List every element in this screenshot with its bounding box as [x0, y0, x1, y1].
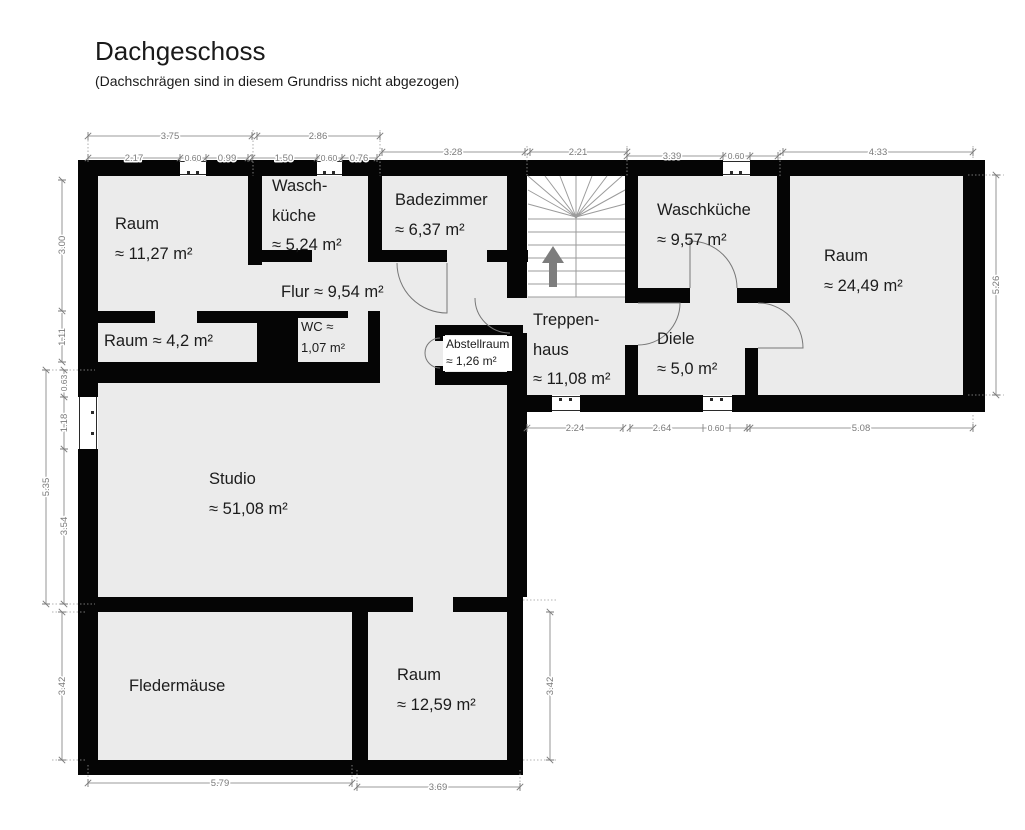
- window: [703, 395, 732, 412]
- opening-waschkueche-gross: [688, 286, 739, 305]
- room-label-studio: Studio ≈ 51,08 m²: [209, 465, 288, 524]
- room-label-wc: WC ≈ 1,07 m²: [301, 317, 345, 359]
- dim-left-2: 1.11: [57, 328, 68, 346]
- opening-treppenhaus-diele: [623, 301, 641, 347]
- floorplan-page: Dachgeschoss (Dachschrägen sind in diese…: [0, 0, 1025, 830]
- floorplan-drawing: 3.75 2.86 2.17 0.60 0.99 1.50 0.60 0.76 …: [0, 0, 1025, 830]
- dim-top-inner-1: 2.17: [125, 153, 144, 164]
- room-label-waschkueche-klein: Wasch- küche ≈ 5,24 m²: [272, 172, 342, 261]
- dim-left-4: 1.18: [59, 414, 70, 433]
- room-label-abstellraum: Abstellraum ≈ 1,26 m²: [443, 336, 512, 371]
- dim-left-5: 3.54: [59, 517, 70, 536]
- room-label-diele: Diele ≈ 5,0 m²: [657, 325, 717, 384]
- dim-top-inner-5: 0.60: [321, 153, 338, 163]
- opening-diele-raum-no: [743, 301, 761, 350]
- room-label-raum-nw: Raum ≈ 11,27 m²: [115, 210, 193, 269]
- dim-wing-1: 2.24: [566, 423, 585, 434]
- dim-top-inner-6: 0.76: [350, 153, 369, 164]
- dim-top-inner-3: 0.99: [218, 153, 237, 164]
- dim-right-1: 5.26: [991, 276, 1002, 295]
- dim-wing-3: 0.60: [708, 423, 725, 433]
- dim-right-inner-1: 3.42: [545, 677, 556, 696]
- dim-top-right-3: 4.33: [869, 147, 888, 158]
- dim-left-1: 3.00: [57, 236, 68, 255]
- dim-top-mid-2: 2.21: [569, 147, 588, 158]
- dim-top-outer-2: 2.86: [309, 131, 328, 142]
- dim-wing-4: 5.08: [852, 423, 871, 434]
- room-label-raum-sw: Raum ≈ 12,59 m²: [397, 661, 476, 720]
- window: [723, 160, 750, 176]
- dim-top-right-2: 0.60: [728, 151, 745, 161]
- dim-bottom-2: 3.69: [429, 782, 448, 793]
- opening-badezimmer: [445, 248, 490, 262]
- room-label-raum-mitte: Raum ≈ 4,2 m²: [104, 327, 213, 357]
- room-label-fledermaeuse: Fledermäuse: [129, 672, 225, 702]
- dim-bottom-1: 5.79: [211, 778, 230, 789]
- room-label-flur: Flur ≈ 9,54 m²: [281, 278, 384, 308]
- dim-top-inner-2: 0.60: [185, 153, 202, 163]
- window: [78, 397, 98, 449]
- dim-top-right-1: 3.39: [663, 151, 682, 162]
- dim-wing-2: 2.64: [653, 423, 672, 434]
- dim-left-3: 0.63: [59, 374, 69, 391]
- room-floor-studio: [88, 375, 513, 603]
- room-label-waschkueche-gross: Waschküche ≈ 9,57 m²: [657, 196, 751, 255]
- dim-top-mid-1: 3.28: [444, 147, 463, 158]
- dim-top-inner-4: 1.50: [275, 153, 294, 164]
- dim-left-6: 5.35: [41, 478, 52, 497]
- window: [552, 395, 580, 412]
- room-label-treppenhaus: Treppen- haus ≈ 11,08 m²: [533, 306, 611, 395]
- dim-left-7: 3.42: [57, 677, 68, 696]
- dim-top-outer-1: 3.75: [161, 131, 180, 142]
- room-label-raum-no: Raum ≈ 24,49 m²: [824, 242, 903, 301]
- room-label-badezimmer: Badezimmer ≈ 6,37 m²: [395, 186, 488, 245]
- staircase: [528, 176, 625, 297]
- opening-studio-raum-sw: [410, 590, 456, 615]
